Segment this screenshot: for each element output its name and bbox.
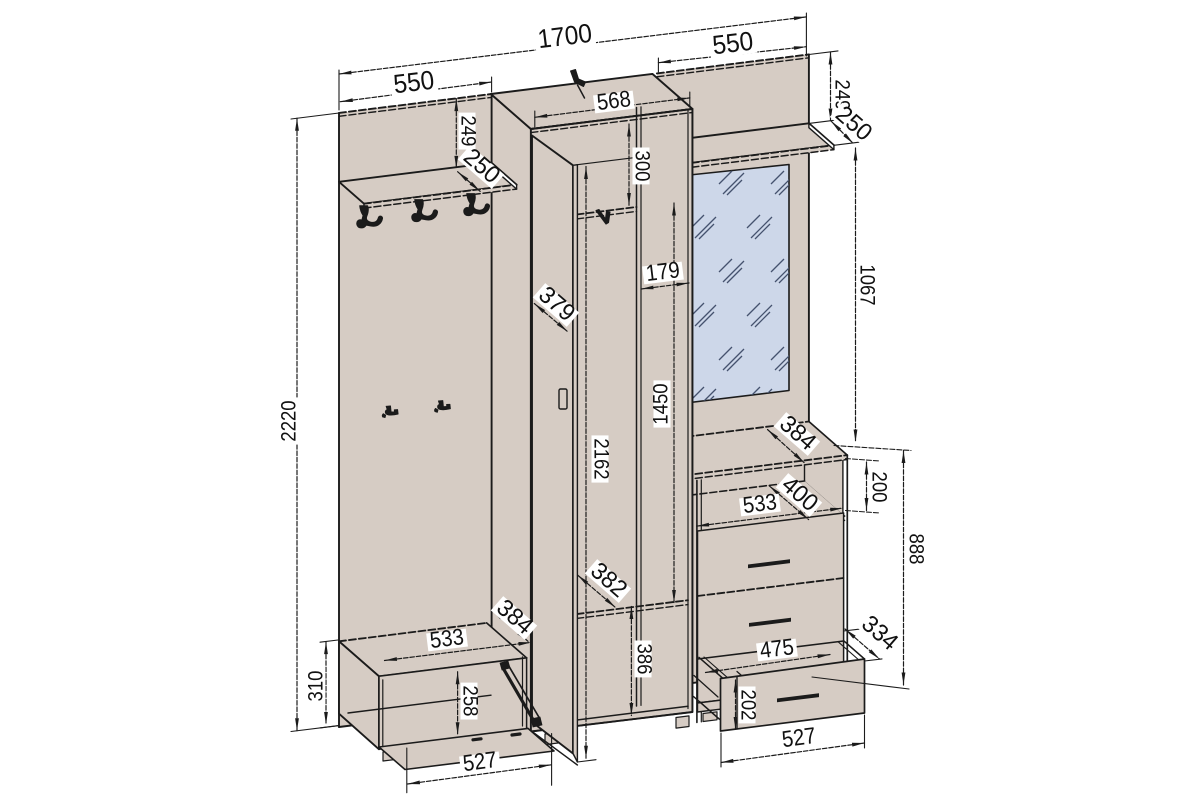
svg-text:533: 533 [428,623,465,653]
svg-text:527: 527 [461,746,498,776]
svg-text:533: 533 [741,488,778,518]
svg-text:1067: 1067 [855,264,879,305]
svg-text:568: 568 [595,85,632,115]
svg-text:2220: 2220 [277,400,301,441]
svg-text:386: 386 [632,644,656,675]
svg-text:550: 550 [711,26,755,61]
svg-text:300: 300 [630,151,654,182]
svg-text:310: 310 [304,671,328,702]
svg-text:550: 550 [392,65,436,100]
svg-text:258: 258 [458,686,482,717]
svg-text:2162: 2162 [589,438,613,479]
svg-text:1450: 1450 [649,383,673,424]
svg-text:888: 888 [904,534,928,565]
svg-text:527: 527 [780,722,817,752]
svg-text:249: 249 [456,116,480,147]
svg-text:179: 179 [644,256,681,286]
svg-text:200: 200 [867,472,891,503]
svg-text:475: 475 [758,633,795,663]
svg-text:202: 202 [736,690,760,721]
